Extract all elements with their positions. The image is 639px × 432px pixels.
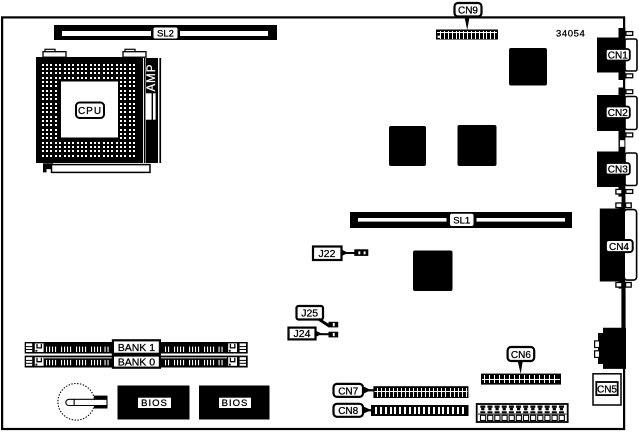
svg-text:34054: 34054	[556, 29, 585, 40]
svg-text:SL1: SL1	[453, 216, 470, 227]
svg-text:CN2: CN2	[608, 108, 628, 119]
svg-text:J24: J24	[294, 328, 311, 340]
svg-text:CN3: CN3	[608, 164, 628, 175]
svg-text:CPU: CPU	[78, 106, 102, 117]
svg-text:J22: J22	[319, 248, 336, 260]
svg-text:CN9: CN9	[458, 5, 478, 16]
svg-text:CN4: CN4	[609, 242, 629, 253]
svg-text:CN6: CN6	[511, 350, 531, 361]
svg-text:BANK 0: BANK 0	[118, 357, 156, 369]
svg-text:BIOS: BIOS	[222, 398, 249, 409]
svg-text:CN7: CN7	[338, 386, 358, 397]
svg-text:BANK 1: BANK 1	[118, 342, 156, 354]
svg-text:SL2: SL2	[157, 29, 174, 40]
svg-text:CN1: CN1	[608, 50, 628, 61]
svg-text:CN5: CN5	[597, 384, 617, 395]
svg-text:BIOS: BIOS	[141, 398, 168, 409]
svg-text:AMP: AMP	[146, 64, 158, 92]
svg-text:J25: J25	[301, 308, 318, 320]
svg-text:CN8: CN8	[338, 406, 358, 417]
